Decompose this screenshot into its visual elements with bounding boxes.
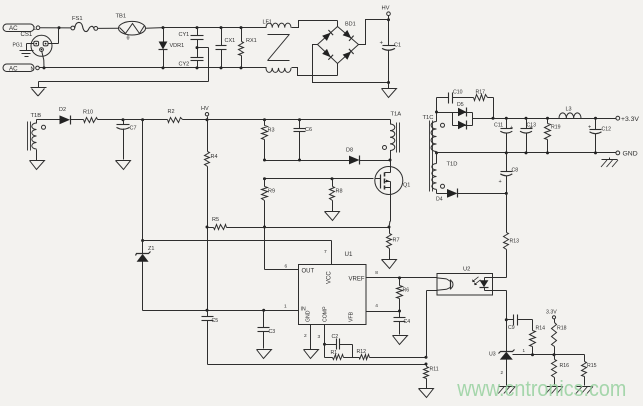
svg-text:U2: U2 (463, 267, 470, 273)
svg-text:D8: D8 (346, 148, 353, 154)
svg-text:CY1: CY1 (179, 32, 190, 38)
svg-text:BD1: BD1 (345, 22, 356, 28)
svg-text:C6: C6 (305, 127, 312, 133)
svg-text:GND: GND (306, 310, 312, 322)
svg-text:C9: C9 (508, 325, 515, 331)
svg-text:θ: θ (127, 36, 130, 42)
svg-text:R14: R14 (536, 326, 546, 332)
svg-text:C5: C5 (212, 318, 219, 324)
svg-text:+: + (588, 125, 591, 131)
svg-text:C12: C12 (602, 127, 612, 133)
svg-text:D4: D4 (436, 197, 443, 203)
svg-text:VFB: VFB (349, 311, 355, 322)
svg-text:R15: R15 (587, 363, 597, 369)
svg-text:C8: C8 (512, 168, 519, 174)
svg-text:TB1: TB1 (116, 14, 127, 20)
svg-text:3: 3 (318, 334, 321, 340)
svg-text:R1: R1 (331, 350, 338, 356)
svg-text:AC: AC (9, 66, 18, 73)
svg-text:R18: R18 (557, 326, 567, 332)
svg-text:R12: R12 (357, 349, 367, 355)
svg-text:1: 1 (284, 304, 287, 310)
svg-text:www.cntronics.com: www.cntronics.com (456, 376, 626, 401)
svg-text:D5: D5 (457, 102, 464, 108)
svg-text:+: + (499, 179, 502, 185)
svg-text:AC: AC (9, 25, 18, 32)
svg-text:T1A: T1A (391, 112, 402, 118)
svg-text:8: 8 (375, 270, 378, 276)
svg-text:C2: C2 (332, 334, 339, 340)
svg-text:R8: R8 (336, 189, 343, 195)
svg-text:R3: R3 (268, 128, 275, 134)
svg-text:+: + (530, 125, 533, 131)
svg-text:+: + (510, 125, 513, 131)
svg-text:T1B: T1B (31, 113, 42, 119)
svg-text:R9: R9 (268, 189, 275, 195)
svg-text:VCC: VCC (327, 271, 333, 284)
svg-text:R6: R6 (403, 288, 410, 294)
svg-text:R13: R13 (510, 239, 520, 245)
svg-text:U1: U1 (345, 251, 353, 258)
svg-text:R4: R4 (211, 154, 218, 160)
svg-text:COMP: COMP (323, 306, 329, 322)
svg-text:Z1: Z1 (148, 246, 154, 252)
svg-text:CY2: CY2 (179, 62, 190, 68)
svg-text:+: + (380, 41, 384, 47)
svg-text:PG1: PG1 (13, 43, 23, 49)
svg-text:R16: R16 (560, 363, 570, 369)
svg-text:C10: C10 (453, 90, 463, 96)
svg-text:6: 6 (285, 264, 288, 270)
svg-text:CS1: CS1 (21, 32, 33, 38)
svg-text:RX1: RX1 (246, 38, 257, 44)
svg-text:N: N (31, 67, 35, 73)
svg-text:L3: L3 (566, 107, 572, 113)
svg-text:R7: R7 (393, 238, 400, 244)
svg-text:HV: HV (201, 106, 209, 112)
svg-text:C7: C7 (130, 126, 137, 132)
svg-text:3.3V: 3.3V (546, 310, 557, 316)
svg-text:R10: R10 (83, 110, 93, 116)
svg-text:4: 4 (375, 303, 378, 309)
svg-text:T1D: T1D (447, 162, 458, 168)
svg-text:2: 2 (304, 333, 307, 339)
svg-text:OUT: OUT (302, 268, 315, 274)
svg-text:HV: HV (382, 6, 390, 12)
svg-text:+3.3V: +3.3V (621, 116, 639, 123)
svg-text:C11: C11 (494, 123, 503, 129)
svg-text:Q1: Q1 (403, 183, 410, 189)
svg-text:FS1: FS1 (72, 16, 83, 22)
svg-text:U3: U3 (489, 352, 496, 358)
svg-text:C1: C1 (394, 43, 401, 49)
svg-text:VREF: VREF (348, 276, 364, 282)
svg-text:CX1: CX1 (225, 38, 236, 44)
svg-text:VDR1: VDR1 (170, 43, 185, 49)
svg-text:C4: C4 (404, 319, 411, 325)
svg-text:R19: R19 (551, 125, 561, 131)
svg-text:R2: R2 (168, 109, 175, 115)
svg-text:R17: R17 (476, 90, 486, 96)
svg-text:C3: C3 (269, 329, 276, 335)
svg-text:R5: R5 (212, 217, 219, 223)
svg-text:LF1: LF1 (263, 20, 272, 26)
svg-text:7: 7 (324, 249, 327, 255)
svg-text:R11: R11 (430, 367, 439, 373)
svg-text:D2: D2 (59, 107, 66, 113)
svg-text:T1C: T1C (423, 115, 434, 121)
svg-text:GND: GND (623, 151, 638, 158)
